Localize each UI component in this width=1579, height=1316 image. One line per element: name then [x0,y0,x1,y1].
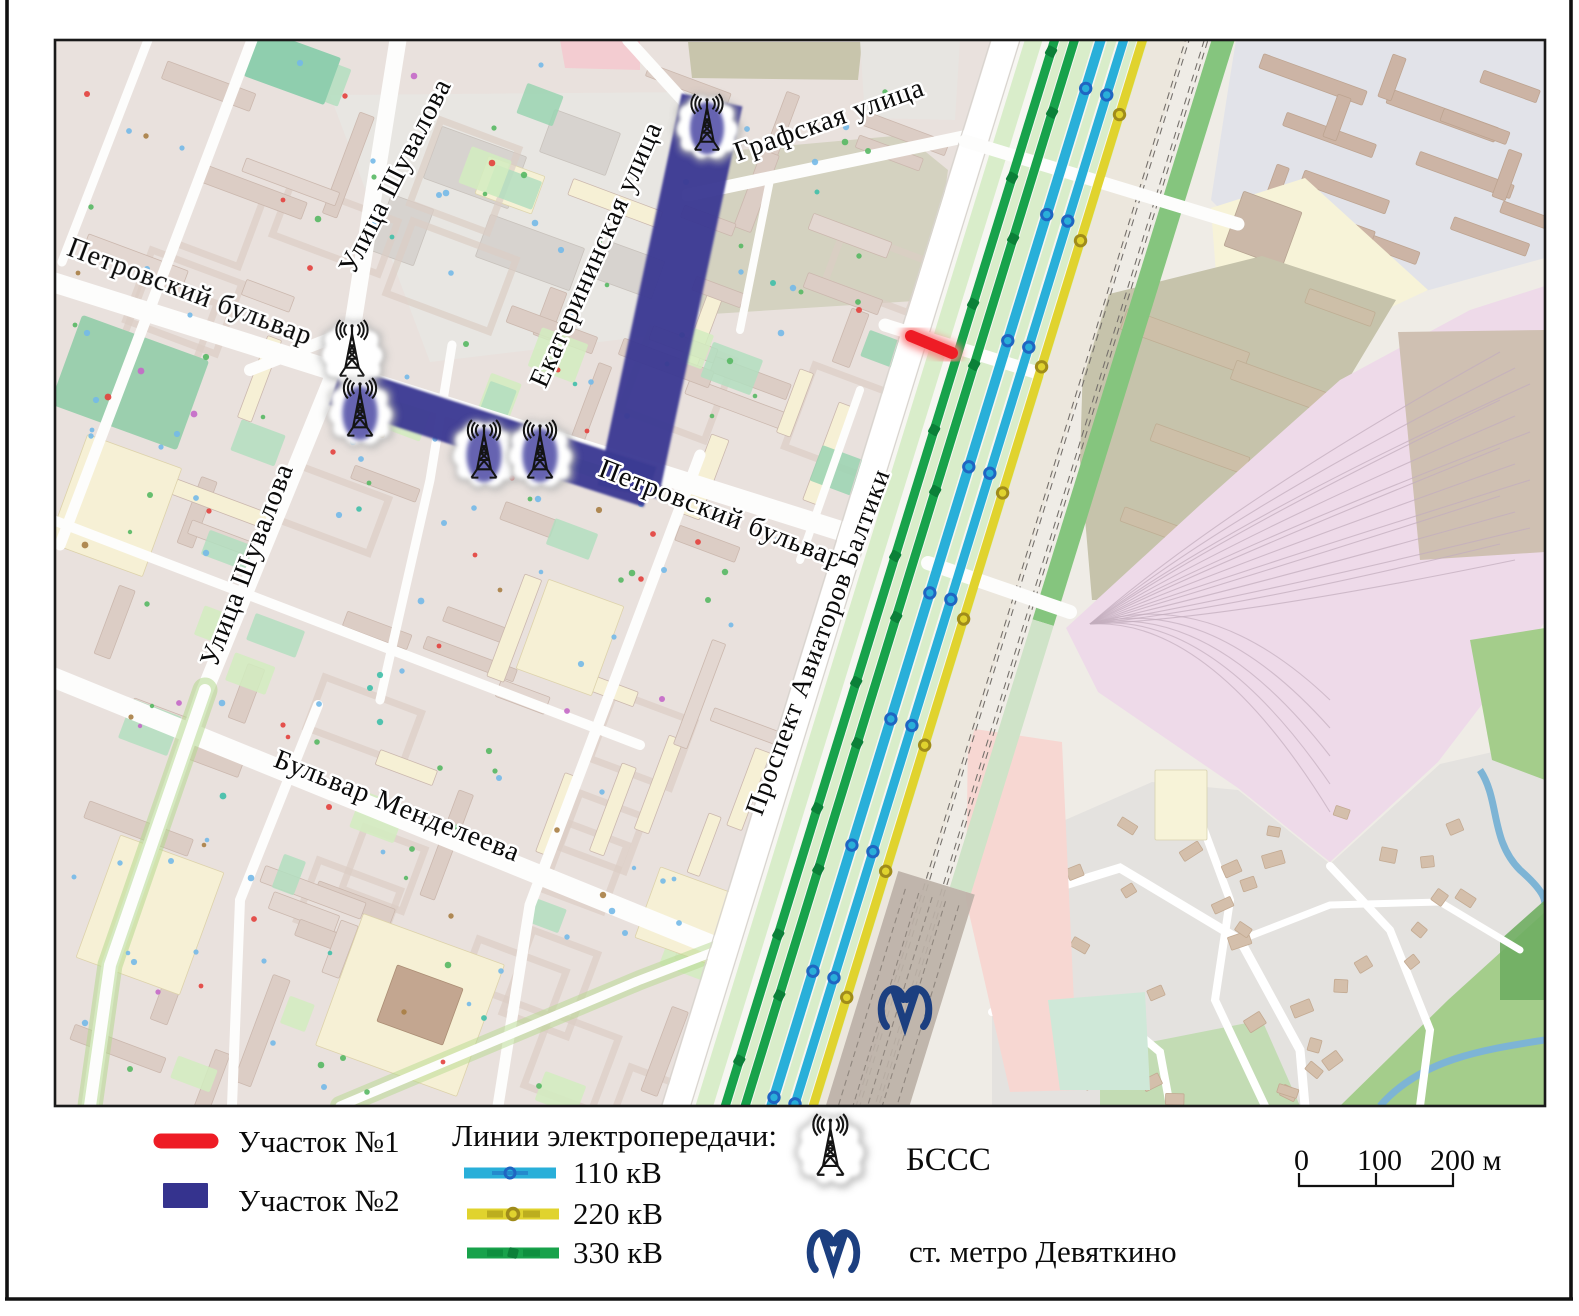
svg-text:330 кВ: 330 кВ [573,1235,663,1270]
svg-text:0: 0 [1294,1144,1309,1177]
svg-text:220 кВ: 220 кВ [573,1196,663,1231]
svg-text:ст. метро Девяткино: ст. метро Девяткино [909,1234,1177,1269]
svg-text:Участок №1: Участок №1 [238,1124,400,1159]
svg-text:Участок №2: Участок №2 [238,1183,400,1218]
svg-text:100: 100 [1357,1144,1402,1177]
svg-text:БССС: БССС [906,1142,991,1178]
svg-text:200 м: 200 м [1430,1144,1502,1177]
svg-text:110 кВ: 110 кВ [573,1155,662,1190]
svg-text:Линии электропередачи:: Линии электропередачи: [452,1118,777,1153]
